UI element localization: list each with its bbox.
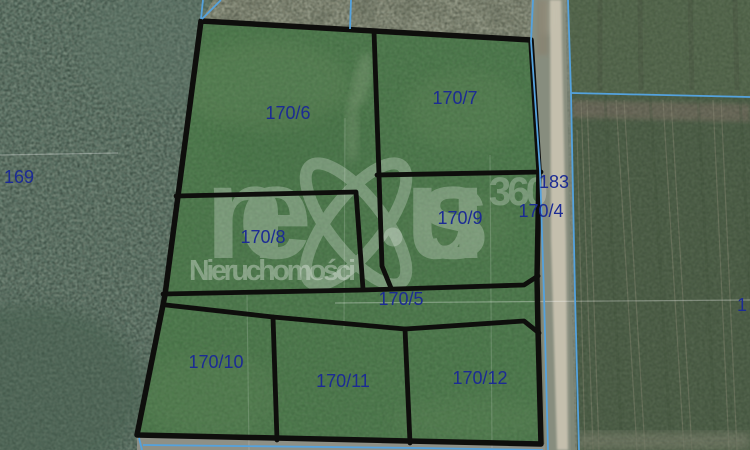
- svg-text:170/11: 170/11: [316, 371, 370, 391]
- svg-text:Nieruchomości: Nieruchomości: [189, 255, 356, 287]
- svg-text:1: 1: [737, 295, 747, 315]
- svg-text:170/12: 170/12: [452, 368, 507, 388]
- svg-text:169: 169: [4, 167, 34, 187]
- svg-text:170/5: 170/5: [378, 289, 423, 309]
- svg-text:183: 183: [539, 172, 569, 192]
- svg-text:170/9: 170/9: [437, 208, 482, 228]
- svg-text:170/4: 170/4: [518, 201, 563, 221]
- svg-text:170/10: 170/10: [188, 352, 243, 372]
- svg-text:170/6: 170/6: [265, 103, 310, 123]
- svg-text:170/7: 170/7: [432, 88, 477, 108]
- svg-text:170/8: 170/8: [240, 227, 285, 247]
